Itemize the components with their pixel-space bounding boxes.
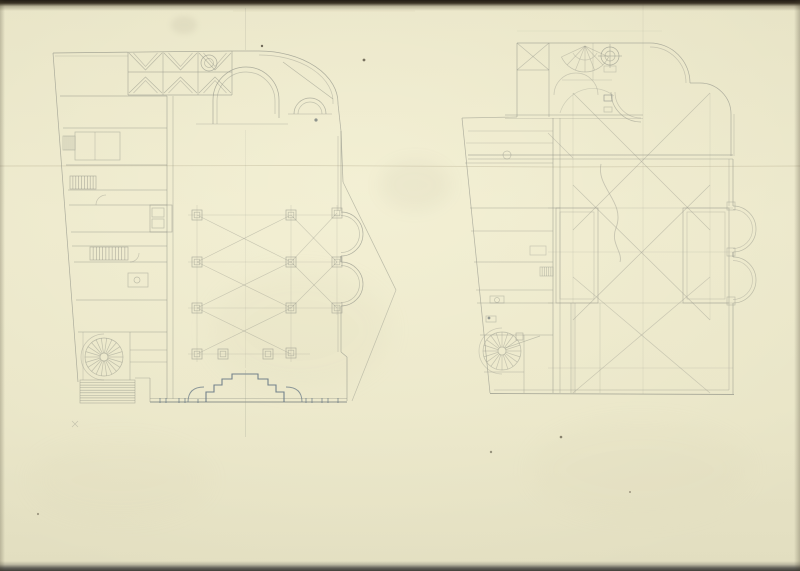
scanned-plan-sheet xyxy=(0,0,800,571)
paper-texture xyxy=(0,11,800,520)
right-floor-plan xyxy=(462,3,756,395)
plan-svg xyxy=(0,0,800,571)
